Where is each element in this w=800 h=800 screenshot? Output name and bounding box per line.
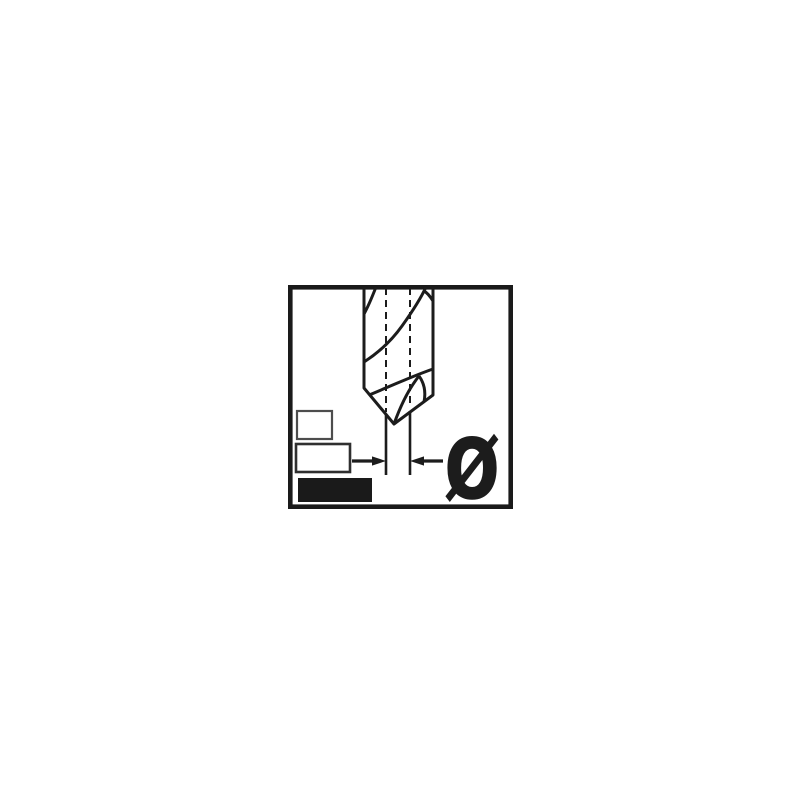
legend-filled-rect-icon bbox=[298, 478, 372, 502]
legend-small-outline-rect-icon bbox=[297, 411, 332, 439]
drill-diameter-pictogram: Ø bbox=[288, 285, 513, 509]
diameter-symbol-icon: Ø bbox=[445, 423, 499, 509]
dimension-arrows-icon bbox=[352, 456, 443, 465]
legend-medium-outline-rect-icon bbox=[296, 444, 350, 472]
page-canvas: Ø bbox=[0, 0, 800, 800]
drill-bit-icon bbox=[364, 287, 433, 424]
pictogram-svg: Ø bbox=[288, 285, 513, 509]
